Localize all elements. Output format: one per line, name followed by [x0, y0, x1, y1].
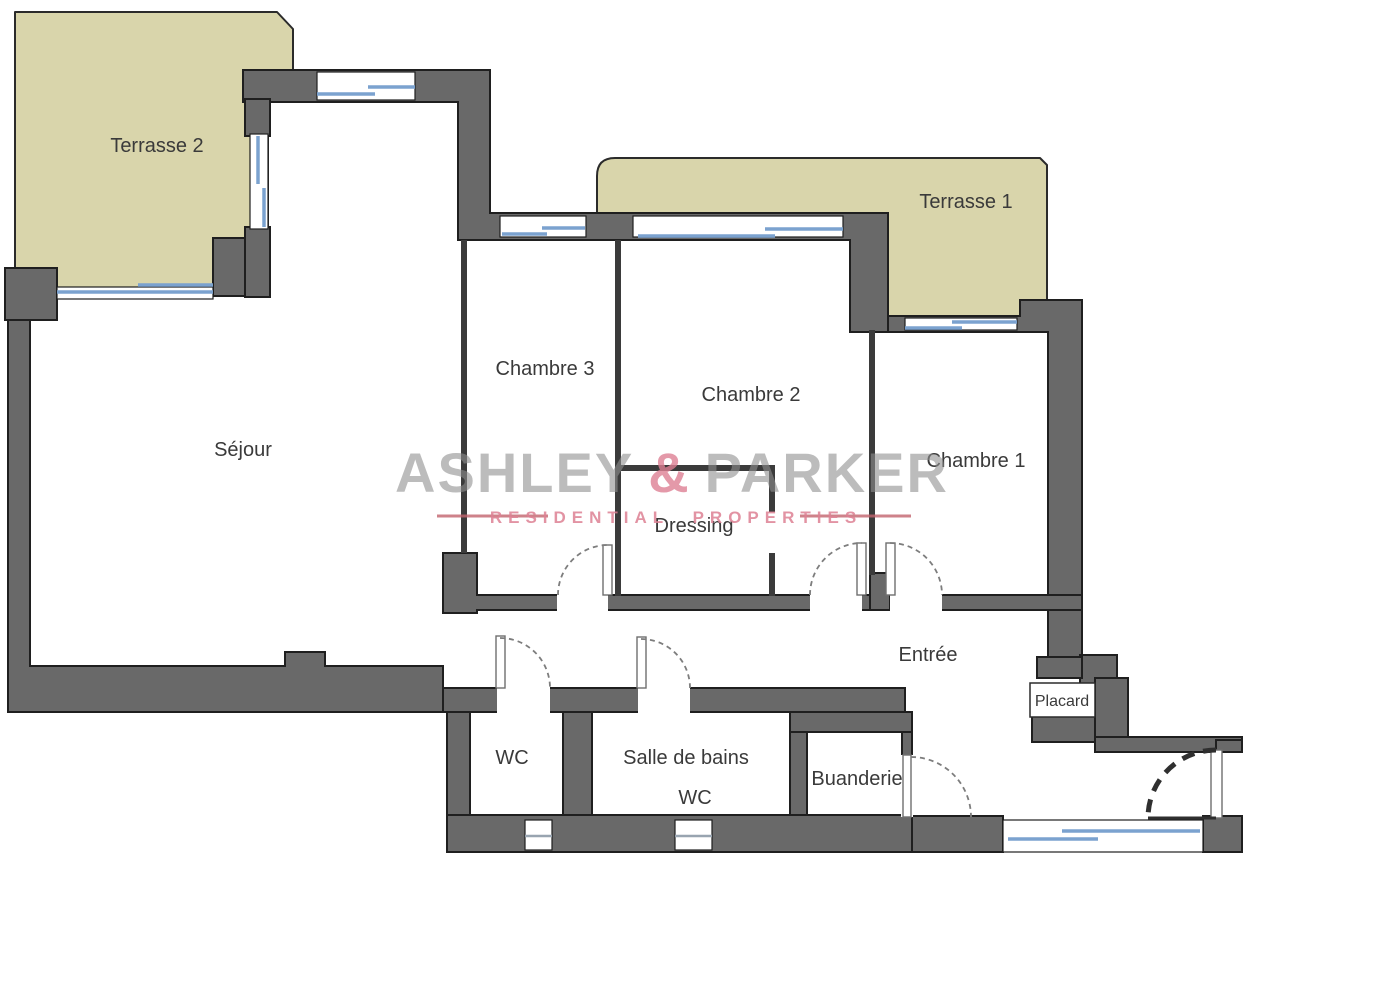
watermark-brand: ASHLEY&PARKER [395, 441, 949, 504]
wall-placard-top [1037, 657, 1082, 678]
wall-entry-bottom [912, 816, 1003, 852]
watermark: ASHLEY&PARKER RESIDENTIAL PROPERTIES [395, 441, 949, 527]
door-arc-wc [500, 638, 550, 688]
wall-terrace2-divider-top [245, 99, 270, 136]
entry-door-arc [1148, 750, 1216, 818]
label-salle-de-bains: Salle de bains [623, 747, 749, 769]
door-gap-chambre3 [557, 593, 608, 612]
door-arc-chambre1 [890, 543, 942, 595]
door-arc-sdb [641, 639, 690, 688]
wall-buanderie-east [902, 732, 912, 757]
door-gap-sdb [638, 686, 690, 714]
label-wc-small: WC [678, 787, 711, 809]
label-terrasse1: Terrasse 1 [919, 191, 1012, 213]
label-wc: WC [495, 747, 528, 769]
door-leaf-chambre3 [603, 545, 612, 595]
door-leaf-chambre2 [857, 543, 866, 595]
wall-wc-sdb-divider [563, 712, 592, 822]
wall-placard-bottom [1032, 716, 1095, 742]
label-placard: Placard [1035, 693, 1089, 710]
label-terrasse2: Terrasse 2 [110, 135, 203, 157]
label-buanderie: Buanderie [811, 768, 902, 790]
watermark-tagline: RESIDENTIAL PROPERTIES [490, 508, 862, 527]
door-leaf-wc [496, 636, 505, 688]
wall-buanderie-top [790, 712, 912, 732]
floor-plan-drawing: Terrasse 2 Terrasse 1 Séjour Chambre 3 C… [0, 0, 1394, 1000]
label-chambre2: Chambre 2 [702, 384, 801, 406]
wall-wc-west [447, 712, 470, 822]
window-chambre2-top [633, 216, 843, 237]
entry-door-leaf [1211, 750, 1222, 818]
door-leaf-chambre1 [886, 543, 895, 595]
window-entry-bottom [1003, 820, 1203, 852]
door-gap-wc [497, 686, 550, 714]
label-entree: Entrée [899, 644, 958, 666]
thin-partitions [464, 240, 872, 596]
wall-terrace2-sw-block [5, 268, 57, 320]
watermark-ampersand: & [648, 441, 690, 504]
label-sejour: Séjour [214, 439, 272, 461]
label-chambre3: Chambre 3 [496, 358, 595, 380]
wall-sdb-buanderie-divider [790, 732, 807, 822]
door-arc-chambre2 [810, 543, 862, 595]
door-leaf-buanderie [903, 755, 911, 817]
door-gap-chambre2 [810, 593, 862, 612]
wall-sejour-west-south [8, 295, 443, 712]
door-arc-buanderie [911, 757, 971, 817]
door-leaf-sdb [637, 637, 646, 688]
door-arc-chambre3 [558, 545, 608, 595]
floor-plan: Terrasse 2 Terrasse 1 Séjour Chambre 3 C… [0, 0, 1394, 1000]
wall-entry-corner [1203, 816, 1242, 852]
door-gap-chambre1 [890, 593, 942, 612]
wall-hall-north [443, 553, 1082, 613]
terrace-areas [15, 12, 1047, 318]
wall-terrace2-divider-bottom [245, 227, 270, 297]
